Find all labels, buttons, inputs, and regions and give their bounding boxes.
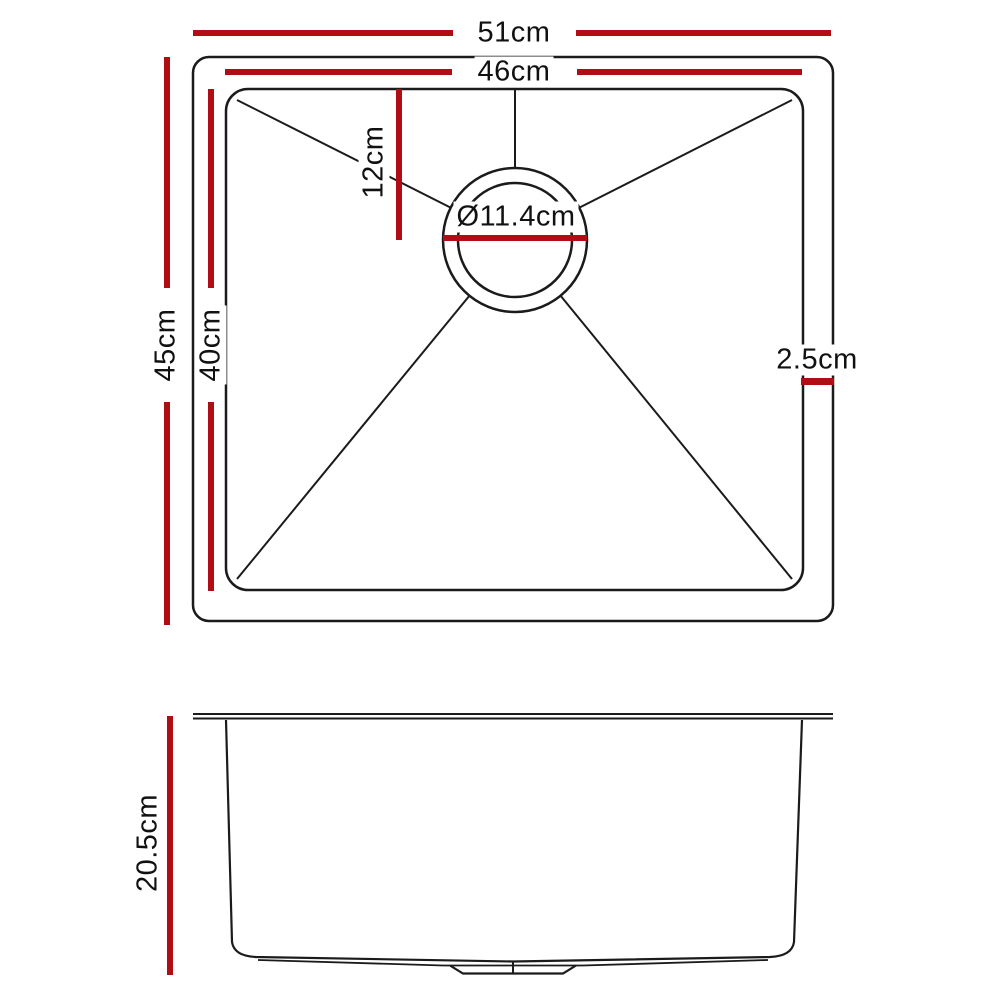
corner-crease-bottom-left: [237, 296, 469, 579]
side-view: [170, 714, 833, 975]
sink-dimension-diagram: 51cm 46cm 45cm 40cm 12cm Ø11.4cm 2.5cm 2…: [0, 0, 1000, 1000]
bowl-profile: [226, 720, 802, 962]
corner-crease-top-left: [237, 100, 451, 208]
dim-label-inner-depth: 40cm: [196, 306, 227, 385]
dim-label-bowl-depth: 20.5cm: [133, 791, 164, 895]
dim-label-inner-width: 46cm: [475, 57, 554, 88]
top-view-dimension-lines: [167, 33, 834, 625]
outer-rim-outline: [193, 57, 833, 621]
corner-crease-bottom-right: [561, 296, 792, 579]
dim-label-overall-depth: 45cm: [151, 306, 182, 385]
top-view: [193, 57, 833, 621]
dim-label-drain-offset: 12cm: [359, 123, 390, 202]
dim-label-overall-width: 51cm: [475, 18, 554, 49]
dim-label-drain-diameter: Ø11.4cm: [453, 202, 578, 233]
corner-crease-top-right: [579, 100, 792, 208]
dim-label-rim-width: 2.5cm: [773, 345, 860, 376]
